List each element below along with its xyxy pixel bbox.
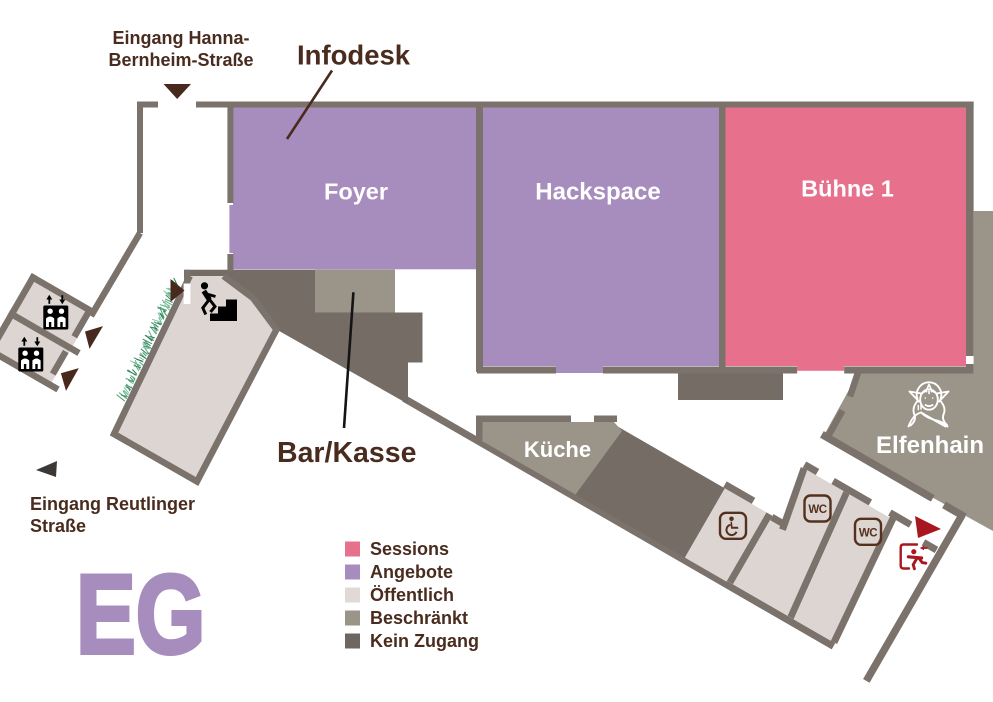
svg-text:Foyer: Foyer xyxy=(324,179,388,205)
svg-text:WC: WC xyxy=(859,527,877,539)
svg-text:Hackspace: Hackspace xyxy=(535,179,660,206)
svg-text:Eingang Hanna-: Eingang Hanna- xyxy=(112,28,249,48)
svg-text:Elfenhain: Elfenhain xyxy=(876,432,984,459)
svg-text:Eingang Reutlinger: Eingang Reutlinger xyxy=(30,494,195,514)
svg-text:Angebote: Angebote xyxy=(370,562,453,582)
svg-text:Infodesk: Infodesk xyxy=(297,40,411,71)
svg-text:Bühne 1: Bühne 1 xyxy=(801,176,894,202)
svg-text:WC: WC xyxy=(808,504,826,516)
svg-text:Bernheim-Straße: Bernheim-Straße xyxy=(108,50,253,70)
svg-text:Kein Zugang: Kein Zugang xyxy=(370,631,479,651)
svg-text:Küche: Küche xyxy=(524,437,591,462)
svg-text:Straße: Straße xyxy=(30,516,86,536)
svg-text:Beschränkt: Beschränkt xyxy=(370,608,468,628)
svg-text:EG: EG xyxy=(76,553,205,678)
svg-text:Öffentlich: Öffentlich xyxy=(370,585,454,605)
svg-text:Sessions: Sessions xyxy=(370,539,449,559)
svg-text:Bar/Kasse: Bar/Kasse xyxy=(277,437,416,469)
